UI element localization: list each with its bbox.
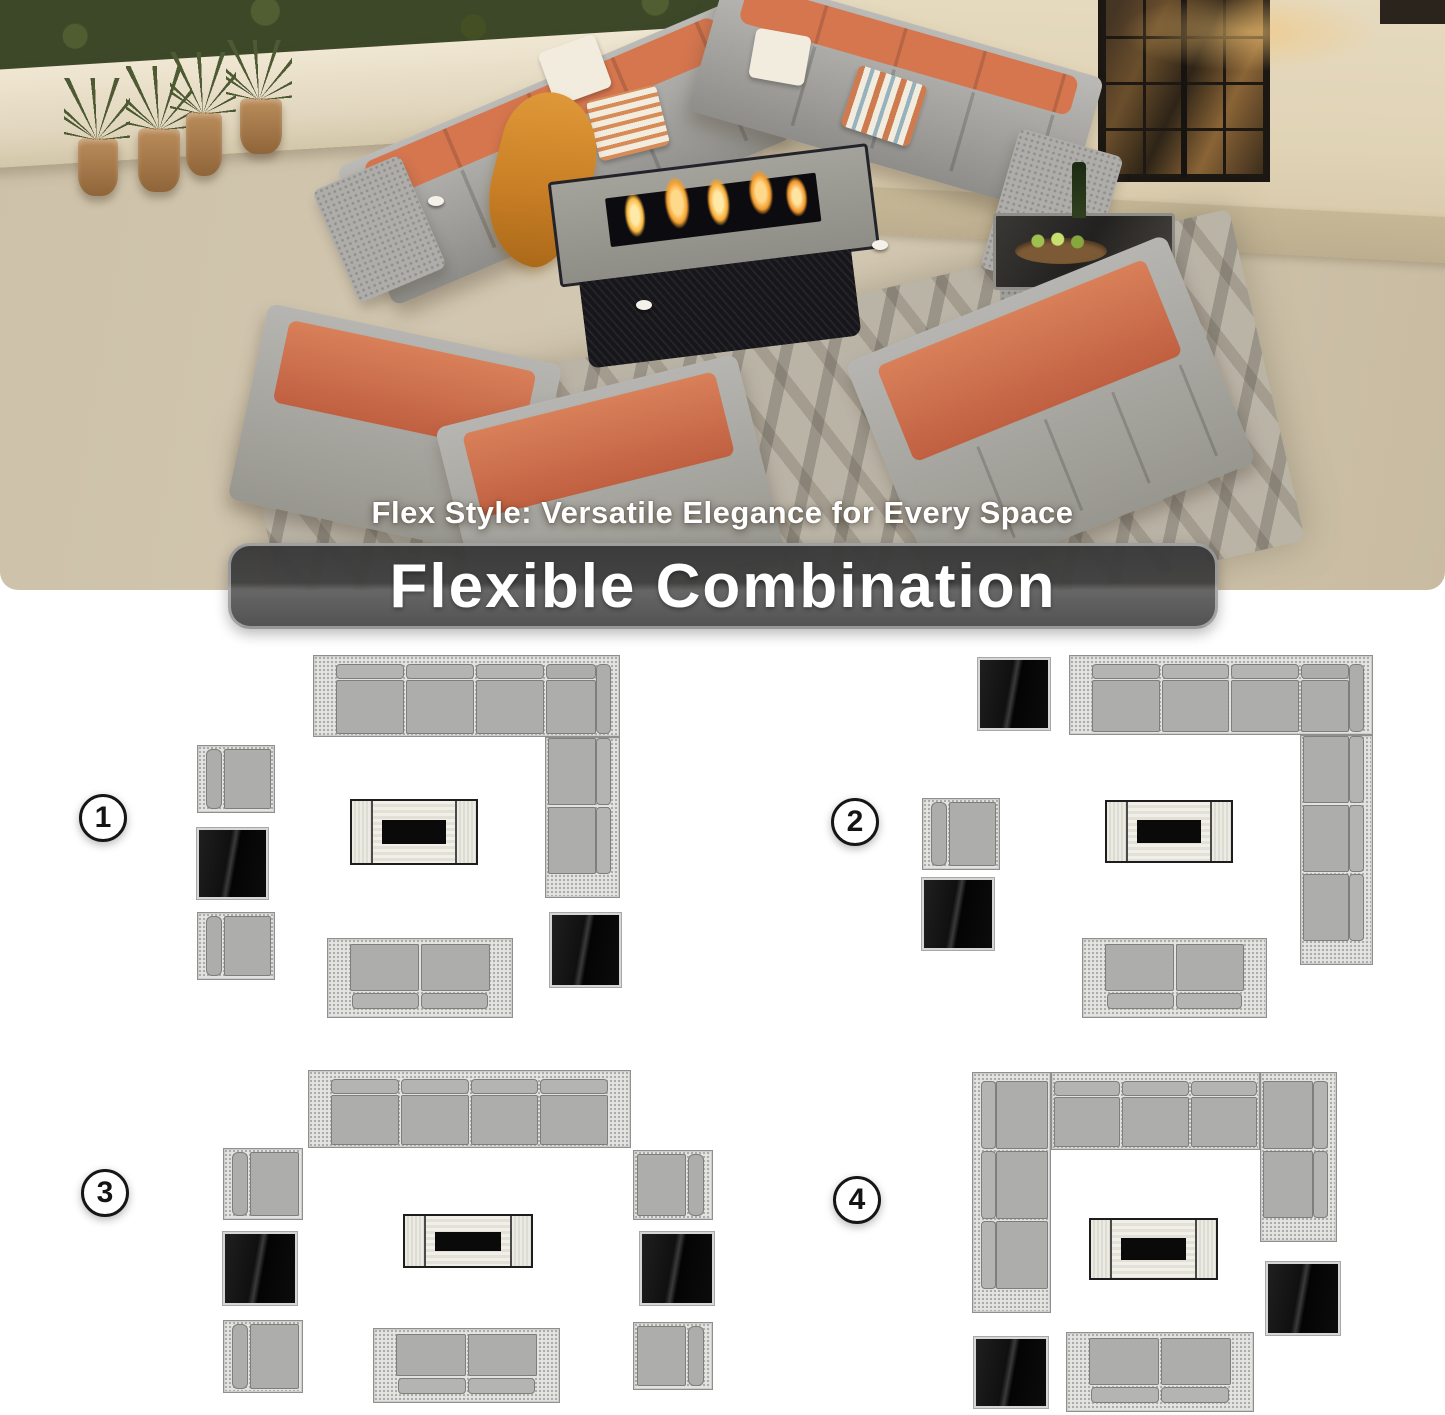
cushion	[398, 1378, 466, 1394]
cushion	[1349, 736, 1364, 803]
corner-seat	[1301, 680, 1349, 732]
seat-area	[350, 944, 490, 991]
cushion	[421, 944, 490, 991]
armless-chair	[633, 1322, 713, 1390]
cushion	[401, 1095, 469, 1145]
wood-end-panel	[1107, 802, 1128, 861]
cushion	[1105, 944, 1174, 991]
combination-3-badge: 3	[81, 1169, 129, 1217]
cushion	[1162, 680, 1230, 732]
cushion	[331, 1095, 399, 1145]
u-sectional-back-run	[1051, 1072, 1260, 1150]
seat-cushions	[996, 1081, 1048, 1289]
armless-chair	[223, 1148, 303, 1220]
armless-chair	[197, 745, 275, 813]
corner-sofa-back-run	[313, 655, 620, 737]
cushion	[548, 738, 596, 805]
fire-pit-table	[403, 1214, 533, 1268]
back-cushions	[1349, 736, 1364, 941]
combination-2-badge: 2	[831, 798, 879, 846]
combination-diagrams: 1234	[0, 0, 1445, 1415]
corner-sofa-side-run	[1300, 735, 1373, 965]
fire-pit-table	[1089, 1218, 1218, 1280]
armless-chair	[633, 1150, 713, 1220]
seat-cushions	[1303, 736, 1349, 941]
wood-end-panel	[352, 801, 373, 863]
armless-chair	[922, 798, 1000, 870]
cushion	[1089, 1338, 1159, 1385]
cushion	[1092, 680, 1160, 732]
cushion	[1349, 805, 1364, 872]
fire-trough	[382, 820, 447, 844]
glass-side-table	[223, 1232, 297, 1305]
product-infographic: Flex Style: Versatile Elegance for Every…	[0, 0, 1445, 1415]
seat-cushions	[548, 738, 596, 874]
corner-back-cushion	[546, 664, 596, 679]
cushion	[471, 1079, 539, 1094]
glass-side-table	[640, 1232, 714, 1305]
back-cushion	[688, 1326, 704, 1386]
cushion	[1303, 805, 1349, 872]
cushion	[1091, 1387, 1159, 1403]
back-cushions	[398, 1378, 535, 1394]
wood-end-panel	[405, 1216, 426, 1266]
cushion	[548, 807, 596, 874]
cushion	[540, 1095, 608, 1145]
cushion	[1191, 1097, 1257, 1147]
wood-end-panel	[510, 1216, 531, 1266]
cushion	[1122, 1097, 1188, 1147]
seat-cushion	[250, 1152, 299, 1216]
wood-end-panel	[1210, 802, 1231, 861]
cushion	[1231, 664, 1299, 679]
back-cushions	[1054, 1081, 1257, 1096]
loveseat	[1066, 1332, 1254, 1412]
cushion	[1176, 993, 1243, 1009]
cushion	[1054, 1081, 1120, 1096]
cushion	[1263, 1151, 1313, 1219]
cushion	[468, 1378, 536, 1394]
cushion	[406, 680, 474, 734]
back-cushions	[352, 993, 488, 1009]
cushion	[421, 993, 488, 1009]
back-cushions	[1092, 664, 1299, 679]
back-cushion	[688, 1154, 704, 1216]
corner-seat	[546, 680, 596, 734]
u-sectional-right-run	[1260, 1072, 1337, 1242]
cushion	[1191, 1081, 1257, 1096]
wood-end-panel	[1195, 1220, 1216, 1278]
combination-4-badge: 4	[833, 1176, 881, 1224]
back-cushion	[931, 802, 947, 866]
seat-cushion	[637, 1326, 686, 1386]
cushion	[996, 1081, 1048, 1149]
seat-cushions	[331, 1095, 608, 1145]
seat-area	[1105, 944, 1244, 991]
loveseat	[373, 1328, 560, 1403]
cushion	[1231, 680, 1299, 732]
corner-side-back-cushion	[1349, 664, 1364, 732]
cushion	[401, 1079, 469, 1094]
cushion	[1263, 1081, 1313, 1149]
combination-1-badge: 1	[79, 794, 127, 842]
seat-cushion	[637, 1154, 686, 1216]
cushion	[1161, 1387, 1229, 1403]
back-cushions	[981, 1081, 996, 1289]
cushion	[476, 664, 544, 679]
cushion	[1092, 664, 1160, 679]
cushion	[981, 1081, 996, 1149]
back-cushions	[336, 664, 544, 679]
cushion	[1122, 1081, 1188, 1096]
glass-side-table	[978, 658, 1050, 730]
cushion	[996, 1151, 1048, 1219]
cushion	[1303, 874, 1349, 941]
cushion	[396, 1334, 466, 1376]
cushion	[352, 993, 419, 1009]
u-sectional-left-run	[972, 1072, 1051, 1313]
cushion	[1349, 874, 1364, 941]
cushion	[1303, 736, 1349, 803]
fire-trough	[1121, 1238, 1186, 1260]
corner-back-cushion	[1301, 664, 1349, 679]
corner-sofa-back-run	[1069, 655, 1373, 735]
back-cushion	[206, 916, 222, 976]
cushion	[596, 738, 611, 805]
back-cushions	[331, 1079, 608, 1094]
glass-side-table	[1266, 1262, 1340, 1335]
fire-pit-table	[1105, 800, 1233, 863]
cushion	[336, 680, 404, 734]
seat-cushion	[250, 1324, 299, 1389]
cushion	[1313, 1081, 1328, 1149]
four-seat-sofa	[308, 1070, 631, 1148]
back-cushion	[206, 749, 222, 809]
back-cushions	[1107, 993, 1242, 1009]
seat-cushions	[336, 680, 544, 734]
seat-area	[396, 1334, 537, 1376]
cushion	[1107, 993, 1174, 1009]
fire-trough	[435, 1232, 501, 1251]
cushion	[331, 1079, 399, 1094]
cushion	[981, 1221, 996, 1289]
cushion	[1162, 664, 1230, 679]
seat-cushions	[1263, 1081, 1313, 1218]
cushion	[350, 944, 419, 991]
cushion	[336, 664, 404, 679]
glass-side-table	[922, 878, 994, 950]
seat-cushion	[224, 749, 271, 809]
cushion	[1176, 944, 1245, 991]
fire-pit-table	[350, 799, 478, 865]
glass-side-table	[197, 828, 268, 899]
fire-trough	[1137, 820, 1202, 842]
wood-end-panel	[1091, 1220, 1112, 1278]
seat-cushion	[224, 916, 271, 976]
glass-side-table	[550, 913, 621, 987]
cushion	[996, 1221, 1048, 1289]
cushion	[1313, 1151, 1328, 1219]
armless-chair	[223, 1320, 303, 1393]
back-cushions	[596, 738, 611, 874]
cushion	[596, 807, 611, 874]
corner-sofa-side-run	[545, 737, 620, 898]
loveseat	[1082, 938, 1267, 1018]
armless-chair	[197, 912, 275, 980]
cushion	[476, 680, 544, 734]
back-cushion	[232, 1152, 248, 1216]
back-cushions	[1313, 1081, 1328, 1218]
seat-cushions	[1092, 680, 1299, 732]
wood-end-panel	[455, 801, 476, 863]
cushion	[406, 664, 474, 679]
corner-side-back-cushion	[596, 664, 611, 734]
cushion	[471, 1095, 539, 1145]
cushion	[468, 1334, 538, 1376]
cushion	[1054, 1097, 1120, 1147]
back-cushion	[232, 1324, 248, 1389]
cushion	[981, 1151, 996, 1219]
seat-cushions	[1054, 1097, 1257, 1147]
seat-area	[1089, 1338, 1231, 1385]
cushion	[540, 1079, 608, 1094]
cushion	[1161, 1338, 1231, 1385]
loveseat	[327, 938, 513, 1018]
seat-cushion	[949, 802, 996, 866]
back-cushions	[1091, 1387, 1229, 1403]
glass-side-table	[974, 1337, 1048, 1408]
